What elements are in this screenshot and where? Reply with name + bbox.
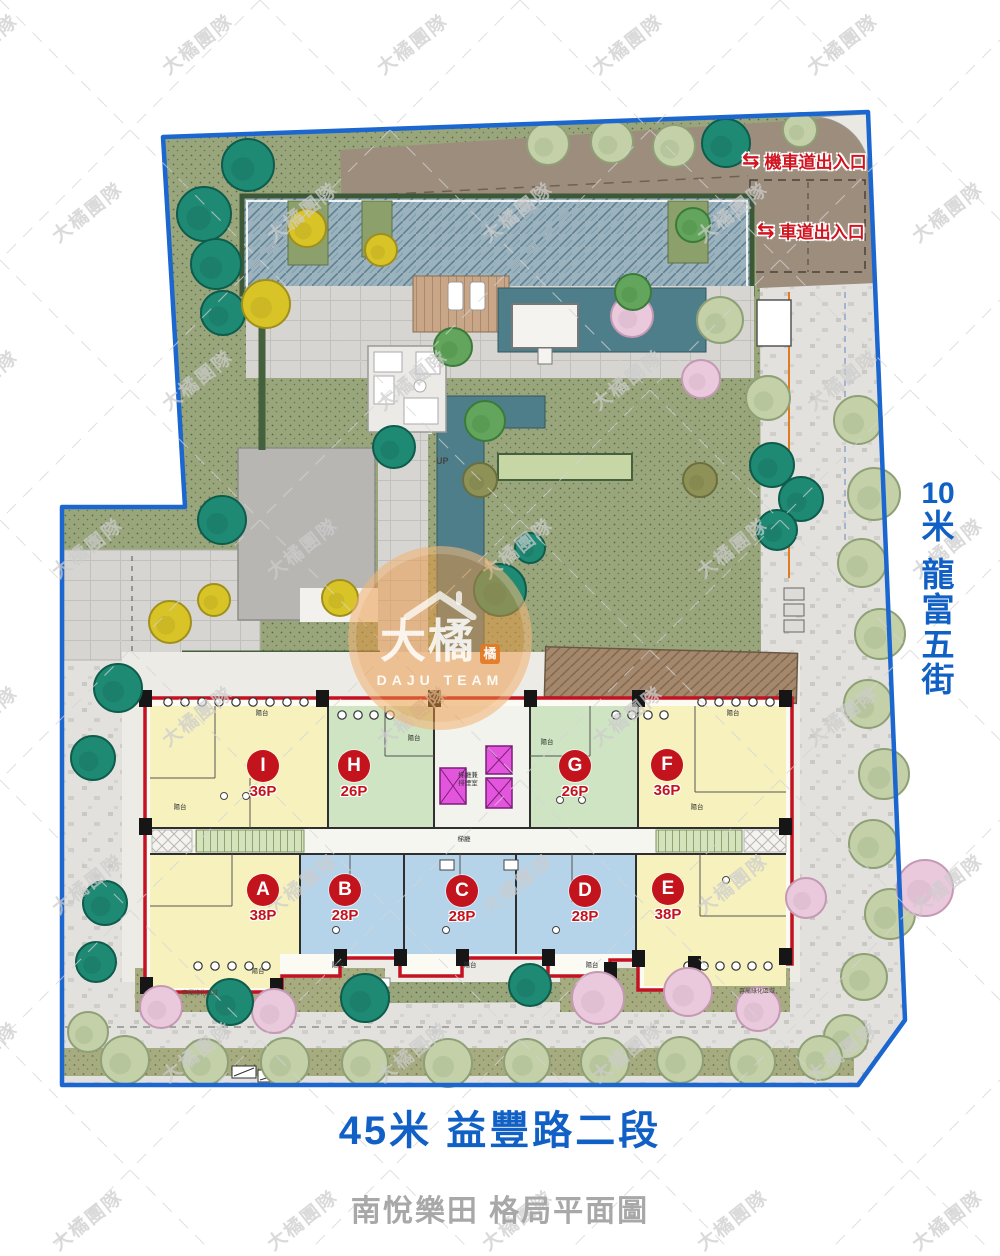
tree-teal — [198, 496, 246, 544]
tree-pink — [140, 986, 182, 1028]
pillar — [524, 690, 537, 707]
unit-A-patio — [150, 954, 280, 988]
window-symbol — [386, 711, 394, 719]
tree-teal — [515, 533, 545, 563]
window-symbol — [211, 962, 219, 970]
tree-teal — [373, 426, 415, 468]
tree-sage — [261, 1038, 309, 1086]
tree-sage — [729, 1039, 775, 1085]
window-symbol — [198, 698, 206, 706]
tree-teal — [201, 291, 245, 335]
stairs — [656, 830, 742, 852]
tree-sage — [798, 1036, 842, 1080]
window-symbol — [700, 962, 708, 970]
unit-H — [328, 706, 434, 828]
tree-yellow — [288, 209, 326, 247]
window-symbol — [300, 698, 308, 706]
tree-pink — [736, 987, 780, 1031]
tree-sage — [504, 1039, 550, 1085]
tree-sage — [527, 123, 569, 165]
tree-teal — [177, 187, 231, 241]
tree-sage — [182, 1039, 228, 1085]
tree-sage — [783, 113, 817, 147]
tree-pink — [664, 968, 712, 1016]
unit-B — [300, 854, 404, 954]
tree-sage — [844, 680, 892, 728]
tree-sage — [859, 749, 909, 799]
tree-sage — [101, 1036, 149, 1084]
tree-pink — [252, 989, 296, 1033]
tree-teal — [702, 119, 750, 167]
tree-sage — [841, 954, 887, 1000]
building — [139, 690, 792, 995]
tree-teal — [71, 736, 115, 780]
tree-sage — [657, 1037, 703, 1083]
unit-E-patio — [644, 954, 786, 986]
window-symbol — [249, 698, 257, 706]
window-symbol — [716, 962, 724, 970]
pillar — [779, 690, 792, 707]
unit-G — [530, 706, 638, 828]
window-symbol — [283, 698, 291, 706]
tree-teal — [222, 139, 274, 191]
tree-olive — [683, 463, 717, 497]
tree-yellow — [242, 280, 290, 328]
tree-sage — [697, 297, 743, 343]
window-symbol — [698, 698, 706, 706]
pillar — [316, 690, 329, 707]
window-symbol — [749, 698, 757, 706]
window-symbol — [644, 711, 652, 719]
unit-F — [638, 706, 786, 828]
tree-teal — [76, 942, 116, 982]
tree-teal — [83, 881, 127, 925]
tree-sage — [68, 1012, 108, 1052]
tree-sage — [581, 1038, 629, 1086]
window-symbol — [338, 711, 346, 719]
tree-sage — [591, 121, 633, 163]
lounger — [470, 282, 485, 310]
hatch-void — [152, 830, 192, 852]
tree-sage — [834, 396, 882, 444]
window-symbol — [228, 962, 236, 970]
stairs — [196, 830, 304, 852]
tree-teal — [94, 664, 142, 712]
outdoor-seating — [368, 346, 446, 432]
unit-E — [636, 854, 786, 954]
window-symbol — [748, 962, 756, 970]
pillar — [632, 950, 645, 967]
window-symbol — [732, 698, 740, 706]
pillar — [779, 818, 792, 835]
site-plan — [0, 0, 1000, 1249]
tree-yellow — [322, 580, 358, 616]
window-symbol — [370, 711, 378, 719]
pillar — [542, 949, 555, 966]
tree-sage — [746, 376, 790, 420]
pillar — [139, 818, 152, 835]
tree-pink — [572, 972, 624, 1024]
window-symbol — [766, 698, 774, 706]
pillar — [334, 949, 347, 966]
window-symbol — [215, 698, 223, 706]
tree-sage — [848, 468, 900, 520]
window-symbol — [194, 962, 202, 970]
tree-pink — [786, 878, 826, 918]
window-symbol — [628, 711, 636, 719]
unit-A — [150, 854, 300, 954]
window-symbol — [612, 711, 620, 719]
tree-yellow — [365, 234, 397, 266]
tree-teal — [750, 443, 794, 487]
tree-sage — [838, 539, 886, 587]
tree-yellow — [198, 584, 230, 616]
tree-pink — [682, 360, 720, 398]
walkway-vertical — [378, 432, 428, 668]
tree-sage — [653, 125, 695, 167]
tree-teal — [207, 979, 253, 1025]
window-symbol — [245, 962, 253, 970]
window-symbol — [732, 962, 740, 970]
window-symbol — [715, 698, 723, 706]
tree-green — [465, 401, 505, 441]
window-symbol — [181, 698, 189, 706]
roadside-equipment — [784, 588, 804, 632]
tree-sage — [424, 1039, 472, 1087]
tree-teal — [341, 974, 389, 1022]
unit-D — [516, 854, 636, 954]
tree-pink — [897, 860, 953, 916]
tree-yellow — [149, 601, 191, 643]
tree-teal — [757, 510, 797, 550]
window-symbol — [164, 698, 172, 706]
tree-green — [434, 328, 472, 366]
window-symbol — [232, 698, 240, 706]
tree-green — [676, 208, 710, 242]
pillar — [456, 949, 469, 966]
unit-I — [150, 706, 328, 828]
lounger — [448, 282, 463, 310]
tree-teal — [191, 239, 241, 289]
window-symbol — [262, 962, 270, 970]
trellis — [544, 647, 797, 704]
pillar — [632, 690, 645, 707]
window-symbol — [764, 962, 772, 970]
pool-deck — [413, 276, 509, 332]
tree-sage — [855, 609, 905, 659]
window-symbol — [266, 698, 274, 706]
tree-sage — [342, 1040, 388, 1086]
unit-core — [434, 706, 530, 828]
window-symbol — [354, 711, 362, 719]
tree-sage — [849, 820, 897, 868]
pillar — [394, 949, 407, 966]
management-booth — [757, 300, 791, 346]
window-symbol — [660, 711, 668, 719]
pillar — [428, 690, 441, 707]
tree-teal — [509, 964, 551, 1006]
tree-teal — [474, 564, 526, 616]
planter-long — [498, 454, 632, 480]
pillar — [779, 948, 792, 965]
tree-green — [615, 274, 651, 310]
tree-olive — [463, 463, 497, 497]
